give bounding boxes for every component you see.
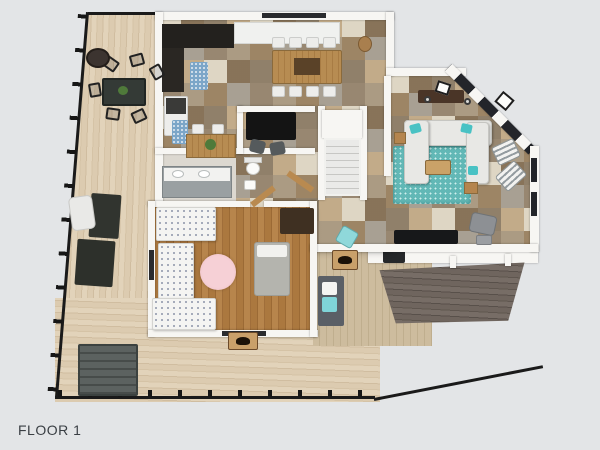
dining-table-runner [294, 58, 320, 75]
side-table-1 [394, 132, 406, 144]
window-living-right-2 [531, 192, 537, 216]
wall-living-left [384, 76, 391, 176]
dining-chair-7 [306, 86, 319, 97]
pink-round-rug [200, 254, 236, 290]
wall-bedroom-top-b [264, 201, 316, 207]
toilet-tank [244, 157, 262, 163]
towel-white [322, 282, 337, 295]
sofa-pillow-teal-3 [468, 166, 478, 175]
side-table-2 [464, 182, 478, 194]
dining-chair-1 [272, 37, 285, 48]
dining-chair-5 [272, 86, 285, 97]
kitchen-cabinets-dark-top [162, 24, 234, 48]
bedroom-wardrobe [280, 208, 314, 234]
tv-media-console [394, 230, 458, 244]
porch-roof [378, 260, 526, 324]
dining-chair-4 [323, 37, 336, 48]
towel-teal [322, 297, 337, 312]
picnic-table [78, 344, 138, 396]
deck-bear-figure-icon [236, 337, 250, 345]
outdoor-kitchen-unit-2 [74, 239, 115, 288]
floor-label: FLOOR 1 [18, 422, 81, 438]
stair-landing [322, 110, 362, 138]
deck-railing-right [374, 365, 543, 401]
armchair-ottoman [476, 235, 492, 245]
wall-sconce-2 [464, 98, 471, 105]
wall-art-2 [494, 91, 514, 111]
breakfast-chair-2 [212, 124, 224, 134]
bear-silhouette-icon [338, 256, 352, 264]
dining-chair-6 [289, 86, 302, 97]
bed-floral-left [158, 243, 194, 299]
dining-chair-8 [323, 86, 336, 97]
wall-sconce-1 [424, 96, 431, 103]
bed-floral-bottom [152, 298, 216, 330]
outdoor-table-plant [118, 86, 128, 95]
bed-gray-pillows [257, 245, 287, 257]
coffee-table [425, 160, 451, 175]
office-desk [246, 112, 296, 140]
breakfast-chair-1 [192, 124, 204, 134]
kitchen-cooktop [166, 98, 186, 114]
floor-plan-canvas[interactable]: FLOOR 1 [0, 0, 600, 450]
outdoor-lounge-chair [68, 194, 96, 231]
powder-sink [244, 180, 256, 190]
bathroom-sink-2 [198, 170, 210, 178]
breakfast-table-plant [205, 139, 216, 150]
kitchen-cabinets-dark-left [162, 48, 184, 92]
bed-floral-top [156, 207, 216, 241]
porch-post-2 [505, 254, 511, 266]
bathroom-sink-1 [172, 170, 184, 178]
wall-dining-right [386, 12, 394, 76]
kitchen-rug-1 [190, 62, 208, 90]
window-bedroom-left [149, 250, 154, 280]
window-top-wall [262, 13, 326, 18]
toilet [246, 162, 260, 175]
outdoor-chair-5 [105, 107, 121, 121]
wicker-basket [358, 36, 372, 52]
office-chair-2 [269, 141, 286, 156]
dining-chair-2 [289, 37, 302, 48]
wall-interior-office-left [237, 106, 243, 154]
dining-chair-3 [306, 37, 319, 48]
window-living-right-1 [531, 158, 537, 182]
grill [86, 48, 110, 68]
staircase [324, 138, 361, 196]
outdoor-chair-4 [88, 82, 102, 98]
porch-post-1 [450, 256, 456, 268]
